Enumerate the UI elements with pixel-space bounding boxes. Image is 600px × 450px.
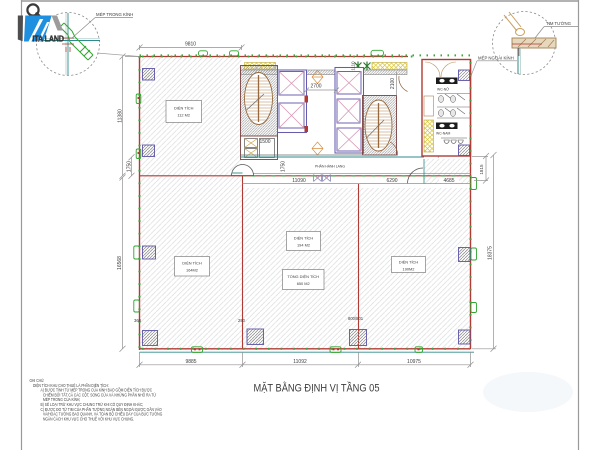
svg-text:4685: 4685	[443, 178, 454, 184]
svg-text:1750: 1750	[127, 161, 133, 172]
svg-text:9810: 9810	[185, 42, 196, 48]
svg-text:2700: 2700	[310, 84, 321, 90]
svg-text:1110: 1110	[351, 61, 356, 71]
svg-text:10975: 10975	[407, 359, 421, 365]
svg-text:DIỆN TÍCH: DIỆN TÍCH	[399, 260, 419, 265]
svg-text:TỔNG DIỆN TÍCH: TỔNG DIỆN TÍCH	[287, 274, 319, 279]
svg-text:290: 290	[238, 318, 246, 323]
svg-text:NGĂN CÁCH KHU VỰC CHO THUÊ VỚI: NGĂN CÁCH KHU VỰC CHO THUÊ VỚI KHU VỰC C…	[43, 416, 134, 422]
svg-text:DIỆN TÍCH KHU CHO THUÊ LÀ PHẦN: DIỆN TÍCH KHU CHO THUÊ LÀ PHẦN DIỆN TÍCH…	[33, 382, 109, 388]
svg-text:800/801: 800/801	[348, 316, 364, 321]
svg-text:C) ĐƯỢC ĐO TỪ TIM CỦA PHẦN TƯỜ: C) ĐƯỢC ĐO TỪ TIM CỦA PHẦN TƯỜNG NGĂN BÊ…	[41, 406, 162, 412]
svg-text:2100: 2100	[390, 78, 396, 89]
svg-text:A) ĐƯỢC TÍNH TỪ MÉP TRONG CỦA: A) ĐƯỢC TÍNH TỪ MÉP TRONG CỦA KÍNH BAO G…	[41, 387, 153, 393]
svg-text:1500: 1500	[259, 139, 270, 145]
svg-text:11092: 11092	[293, 359, 307, 365]
svg-text:9885: 9885	[185, 359, 196, 365]
svg-text:11090: 11090	[292, 178, 306, 184]
svg-text:6290: 6290	[386, 178, 397, 184]
svg-text:1750: 1750	[281, 161, 287, 172]
svg-text:360: 360	[134, 318, 142, 323]
svg-text:112 M2: 112 M2	[177, 113, 190, 118]
svg-text:164M2: 164M2	[186, 268, 198, 273]
svg-text:WC-NỮ: WC-NỮ	[437, 87, 449, 92]
svg-text:GHI CHÚ:: GHI CHÚ:	[29, 377, 44, 383]
svg-text:16568: 16568	[117, 256, 123, 270]
svg-text:1815: 1815	[479, 164, 484, 175]
svg-text:VÀ/HOẶC TƯỜNG BAO QUANH, VÀ TO: VÀ/HOẶC TƯỜNG BAO QUANH, VÀ TOÀN BỘ CHIỀ…	[43, 411, 162, 417]
svg-text:WC-NAM: WC-NAM	[436, 132, 450, 136]
svg-text:DIỆN TÍCH: DIỆN TÍCH	[182, 261, 202, 266]
svg-text:650 M2: 650 M2	[297, 281, 310, 286]
svg-text:MÉP TRONG CỦA KÍNH;: MÉP TRONG CỦA KÍNH;	[43, 397, 80, 403]
svg-text:DIỆN TÍCH: DIỆN TÍCH	[174, 106, 194, 111]
svg-text:MẶT BẰNG ĐỊNH VỊ TẦNG 05: MẶT BẰNG ĐỊNH VỊ TẦNG 05	[254, 382, 380, 395]
svg-text:CHIẾM BỞI TẤT CẢ CÁC CỘT, SONG: CHIẾM BỞI TẤT CẢ CÁC CỘT, SONG CỬA VÀ NH…	[43, 392, 157, 398]
svg-text:11380: 11380	[118, 109, 124, 123]
svg-text:DIỆN TÍCH: DIỆN TÍCH	[294, 236, 314, 241]
svg-text:TIM TƯỜNG: TIM TƯỜNG	[546, 21, 572, 26]
svg-text:MÉP TRONG KÍNH: MÉP TRONG KÍNH	[96, 12, 133, 17]
svg-text:194 M2: 194 M2	[297, 243, 310, 248]
svg-text:190M2: 190M2	[403, 267, 415, 272]
svg-text:ITA LAND: ITA LAND	[32, 35, 64, 44]
svg-text:B) SẼ LOẠI TRỪ KHU VỰC CHUNG T: B) SẼ LOẠI TRỪ KHU VỰC CHUNG TRỪ KHI CÓ …	[41, 402, 144, 408]
svg-text:18375: 18375	[488, 246, 494, 260]
svg-text:PHẦN HÀNH LANG: PHẦN HÀNH LANG	[315, 164, 345, 168]
svg-text:MÉP NGOÀI KÍNH: MÉP NGOÀI KÍNH	[478, 55, 514, 60]
